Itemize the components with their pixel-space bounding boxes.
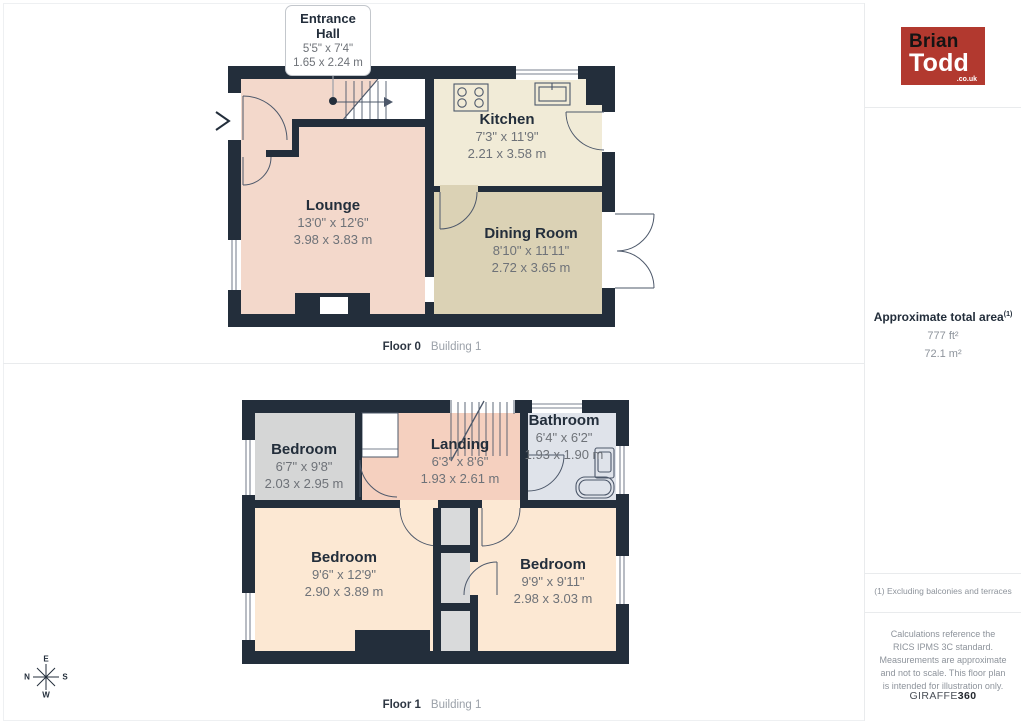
room-label-dining-room: Dining Room 8'10" x 11'11" 2.72 x 3.65 m bbox=[484, 225, 577, 275]
central-cupboard bbox=[433, 508, 478, 651]
stairs-top-opening bbox=[450, 400, 515, 413]
brian-todd-logo: Brian Todd .co.uk bbox=[901, 27, 985, 85]
callout-dims-ft: 5'5" x 7'4" bbox=[288, 43, 368, 55]
kitchen-door-opening bbox=[602, 112, 615, 152]
entrance-arrow-icon bbox=[216, 112, 229, 130]
sidebar: Brian Todd .co.uk Approximate total area… bbox=[864, 3, 1021, 721]
floorplan-page: Entrance Hall 5'5" x 7'4" 1.65 x 2.24 m … bbox=[0, 0, 1024, 724]
compass-label-bottom: W bbox=[42, 691, 50, 700]
french-doors bbox=[615, 214, 654, 288]
callout-anchor-dot bbox=[329, 97, 337, 105]
french-doors-opening bbox=[602, 212, 615, 288]
front-door-opening bbox=[228, 93, 241, 140]
sidebar-divider-2 bbox=[865, 573, 1021, 574]
floor1-caption: Floor 1Building 1 bbox=[282, 699, 582, 711]
bedroom-right-door-opening bbox=[482, 500, 520, 508]
room-label-kitchen: Kitchen 7'3" x 11'9" 2.21 x 3.58 m bbox=[468, 111, 547, 161]
section-divider bbox=[3, 363, 864, 364]
total-area-ft: 777 ft² bbox=[865, 330, 1021, 342]
chimney-floor1 bbox=[355, 630, 430, 651]
floor0-caption: Floor 0Building 1 bbox=[282, 341, 582, 353]
compass-label-top: E bbox=[43, 655, 48, 664]
bedroom-left-door-opening bbox=[400, 500, 438, 508]
closet bbox=[362, 413, 398, 457]
window-floor0-left bbox=[228, 240, 241, 290]
giraffe360-logo: GIRAFFE360 bbox=[865, 690, 1021, 702]
area-footnote: (1) Excluding balconies and terraces bbox=[867, 586, 1019, 596]
hall-stub-wall-h bbox=[266, 150, 299, 157]
room-label-bedroom-left: Bedroom 9'6" x 12'9" 2.90 x 3.89 m bbox=[305, 549, 384, 599]
lounge-dining-opening bbox=[425, 277, 434, 302]
sidebar-divider-3 bbox=[865, 612, 1021, 613]
hall-lounge-wall bbox=[298, 119, 434, 127]
room-label-lounge: Lounge 13'0" x 12'6" 3.98 x 3.83 m bbox=[294, 197, 373, 247]
compass-label-left: N bbox=[24, 673, 30, 682]
window-floor1-right-top bbox=[616, 446, 629, 494]
window-floor1-left-bottom bbox=[242, 593, 255, 640]
room-label-bedroom-small: Bedroom 6'7" x 9'8" 2.03 x 2.95 m bbox=[265, 441, 344, 491]
kitchen-dining-opening bbox=[440, 185, 478, 193]
entrance-hall-callout: Entrance Hall 5'5" x 7'4" 1.65 x 2.24 m bbox=[285, 5, 371, 76]
compass-rose: E N S W bbox=[18, 648, 74, 704]
window-floor1-left-top bbox=[242, 440, 255, 495]
fireplace-recess bbox=[320, 297, 348, 314]
window-floor1-right-bottom bbox=[616, 556, 629, 604]
disclaimer-text: Calculations reference the RICS IPMS 3C … bbox=[879, 628, 1007, 693]
room-label-bathroom: Bathroom 6'4" x 6'2" 1.93 x 1.90 m bbox=[525, 412, 604, 462]
kitchen-wall-step bbox=[586, 79, 602, 105]
room-label-landing: Landing 6'3" x 8'6" 1.93 x 2.61 m bbox=[421, 436, 500, 486]
room-label-bedroom-right: Bedroom 9'9" x 9'11" 2.98 x 3.03 m bbox=[514, 556, 593, 606]
compass-label-right: S bbox=[62, 673, 67, 682]
bedroom-landing-wall bbox=[355, 413, 362, 460]
floor0-plan bbox=[216, 58, 654, 327]
sidebar-divider-1 bbox=[865, 107, 1021, 108]
window-kitchen-top bbox=[516, 66, 578, 80]
total-area-m: 72.1 m² bbox=[865, 348, 1021, 360]
callout-dims-m: 1.65 x 2.24 m bbox=[288, 57, 368, 69]
callout-room-name: Entrance Hall bbox=[288, 11, 368, 41]
total-area-title: Approximate total area(1) bbox=[865, 310, 1021, 324]
total-area-block: Approximate total area(1) 777 ft² 72.1 m… bbox=[865, 310, 1021, 360]
